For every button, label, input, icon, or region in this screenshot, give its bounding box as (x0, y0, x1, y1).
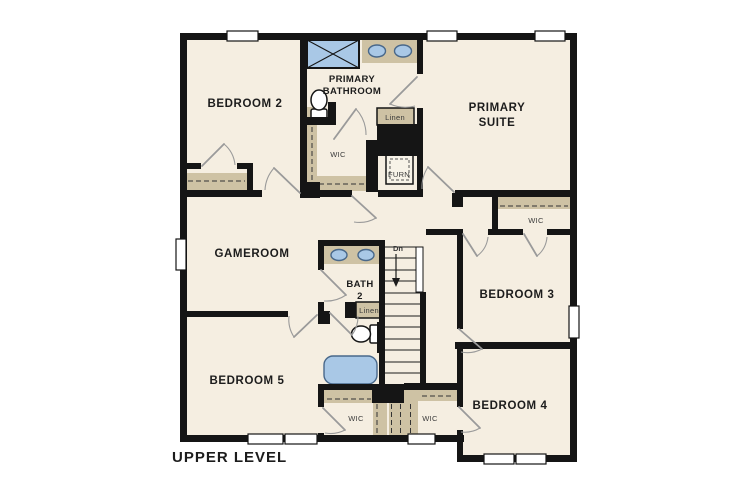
room-label-bedroom-4: BEDROOM 4 (472, 400, 547, 412)
closet-label-wic-bedroom5: WIC (348, 414, 364, 423)
window (176, 239, 186, 270)
room-label-primary-bathroom-line2: BATHROOM (323, 86, 381, 97)
room-label-bedroom-2: BEDROOM 2 (207, 98, 282, 110)
window (285, 434, 317, 444)
sink (358, 250, 374, 261)
window (569, 306, 579, 338)
closet-label-wic-bedroom3: WIC (528, 216, 544, 225)
floor-plan-page: BEDROOM 2 PRIMARY BATHROOM PRIMARY SUITE… (0, 0, 750, 500)
room-label-primary-suite-line1: PRIMARY (469, 102, 526, 114)
utility-label-furnace: FURN (388, 170, 410, 179)
room-label-bedroom-3: BEDROOM 3 (479, 289, 554, 301)
window (227, 31, 258, 41)
room-label-primary-suite-line2: SUITE (479, 117, 516, 129)
closet-label-wic-bedroom4: WIC (422, 414, 438, 423)
room-label-bath2-line2: 2 (357, 291, 363, 302)
room-label-primary-bathroom-line1: PRIMARY (329, 74, 376, 85)
window (248, 434, 283, 444)
closet-label-linen-upper: Linen (385, 113, 405, 122)
room-label-gameroom: GAMEROOM (214, 248, 289, 260)
window (484, 454, 514, 464)
window (535, 31, 565, 41)
sink (395, 45, 412, 57)
window (427, 31, 457, 41)
stairs-dn-label: Dn (393, 244, 403, 253)
window (516, 454, 546, 464)
bathtub (324, 356, 377, 384)
sink (331, 250, 347, 261)
floor-plan-canvas: BEDROOM 2 PRIMARY BATHROOM PRIMARY SUITE… (0, 0, 750, 500)
page-title: UPPER LEVEL (172, 449, 287, 466)
room-label-bath2-line1: BATH (346, 279, 373, 290)
window (408, 434, 435, 444)
room-label-bedroom-5: BEDROOM 5 (209, 375, 284, 387)
sink (369, 45, 386, 57)
staircase (384, 247, 420, 384)
toilet (352, 326, 371, 342)
closet-label-linen-bath2: Linen (359, 306, 379, 315)
stair-handrail (416, 247, 423, 292)
closet-label-wic-primary: WIC (330, 150, 346, 159)
